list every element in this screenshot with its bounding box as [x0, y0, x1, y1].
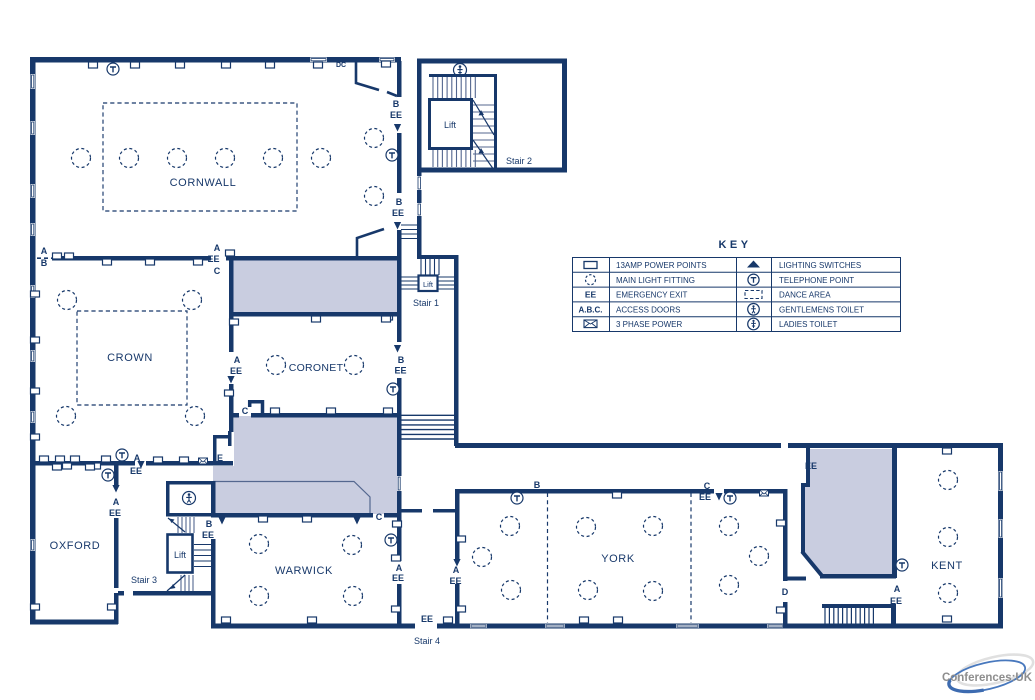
- svg-text:C: C: [214, 266, 221, 276]
- svg-text:A: A: [134, 453, 141, 463]
- svg-text:3 PHASE POWER: 3 PHASE POWER: [616, 320, 682, 329]
- svg-text:EE: EE: [109, 508, 121, 518]
- svg-text:Stair 2: Stair 2: [506, 156, 532, 166]
- svg-text:Stair 1: Stair 1: [413, 298, 439, 308]
- svg-text:LADIES TOILET: LADIES TOILET: [779, 320, 838, 329]
- svg-text:EE: EE: [390, 110, 402, 120]
- svg-text:EE: EE: [202, 530, 214, 540]
- svg-text:B: B: [398, 355, 405, 365]
- svg-text:B: B: [41, 258, 48, 268]
- svg-text:C: C: [242, 406, 249, 416]
- svg-text:B: B: [393, 99, 400, 109]
- svg-text:CROWN: CROWN: [107, 352, 153, 364]
- svg-text:CORONET: CORONET: [289, 362, 344, 374]
- svg-text:EMERGENCY EXIT: EMERGENCY EXIT: [616, 291, 688, 300]
- svg-text:OXFORD: OXFORD: [50, 540, 101, 552]
- svg-text:EE: EE: [585, 290, 597, 300]
- svg-text:A: A: [396, 563, 403, 573]
- svg-text:A: A: [214, 243, 221, 253]
- svg-text:Stair 4: Stair 4: [414, 636, 440, 646]
- svg-text:KEY: KEY: [718, 239, 751, 251]
- svg-text:DC: DC: [336, 62, 346, 69]
- svg-text:Lift: Lift: [423, 280, 434, 289]
- svg-text:EE: EE: [805, 461, 817, 471]
- svg-text:EE: EE: [449, 576, 461, 586]
- svg-text:YORK: YORK: [601, 553, 635, 565]
- svg-text:B: B: [534, 480, 541, 490]
- svg-text:EE: EE: [421, 614, 433, 624]
- svg-text:A: A: [453, 565, 460, 575]
- svg-text:Stair 3: Stair 3: [131, 575, 157, 585]
- svg-text:DANCE AREA: DANCE AREA: [779, 291, 831, 300]
- svg-text:C: C: [376, 512, 383, 522]
- svg-text:TELEPHONE POINT: TELEPHONE POINT: [779, 276, 854, 285]
- svg-text:B: B: [206, 519, 213, 529]
- svg-text:C: C: [704, 481, 711, 491]
- svg-text:EE: EE: [394, 366, 406, 376]
- svg-text:A: A: [234, 355, 241, 365]
- svg-text:GENTLEMENS TOILET: GENTLEMENS TOILET: [779, 305, 864, 314]
- svg-text:CORNWALL: CORNWALL: [170, 177, 237, 189]
- svg-text:A: A: [894, 584, 901, 594]
- svg-text:Lift: Lift: [444, 120, 457, 130]
- svg-text:KENT: KENT: [931, 560, 963, 572]
- svg-text:EE: EE: [230, 366, 242, 376]
- svg-text:WARWICK: WARWICK: [275, 565, 333, 577]
- svg-text:EE: EE: [392, 208, 404, 218]
- svg-text:A: A: [113, 497, 120, 507]
- svg-text:A.B.C.: A.B.C.: [579, 305, 603, 314]
- svg-text:D: D: [782, 587, 789, 597]
- svg-text:A: A: [41, 246, 48, 256]
- svg-text:13AMP POWER POINTS: 13AMP POWER POINTS: [616, 261, 707, 270]
- svg-text:Conferences:UK: Conferences:UK: [942, 672, 1033, 684]
- svg-text:EE: EE: [392, 573, 404, 583]
- svg-text:EE: EE: [207, 254, 219, 264]
- svg-text:MAIN LIGHT FITTING: MAIN LIGHT FITTING: [616, 276, 695, 285]
- svg-text:LIGHTING SWITCHES: LIGHTING SWITCHES: [779, 261, 861, 270]
- svg-text:ACCESS DOORS: ACCESS DOORS: [616, 305, 680, 314]
- svg-text:EE: EE: [699, 492, 711, 502]
- svg-text:Lift: Lift: [174, 550, 187, 560]
- svg-text:EE: EE: [130, 466, 142, 476]
- svg-text:B: B: [396, 197, 403, 207]
